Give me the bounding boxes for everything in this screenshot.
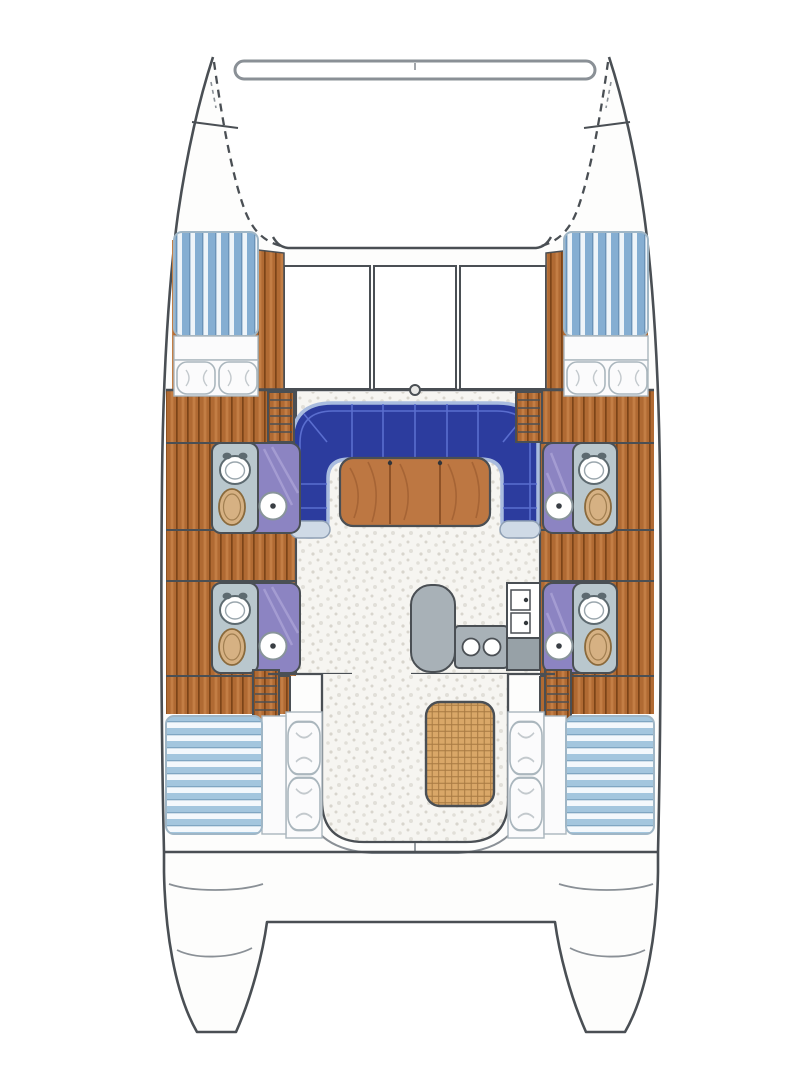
burner-knob [524, 598, 528, 602]
port-aft-berth [166, 716, 262, 834]
port-forward-berth-sheet [174, 336, 258, 360]
starboard-aft-cabin [508, 712, 654, 838]
mast-step [410, 385, 420, 395]
starboard-forward-cabin [564, 232, 648, 396]
salon-table [340, 458, 490, 526]
port-aft-steps [253, 670, 279, 720]
starboard-forward-steps [516, 392, 542, 442]
table-leaf-pin [438, 461, 442, 465]
starboard-aft-berth [566, 716, 654, 834]
pillow [219, 362, 257, 394]
starboard-aft-steps [545, 670, 571, 720]
catamaran-floor-plan [0, 0, 810, 1080]
cockpit-table [426, 702, 494, 806]
galley-sink [484, 639, 501, 656]
foredeck-hatch-starboard [460, 266, 546, 389]
table-leaf-pin [388, 461, 392, 465]
port-forward-steps [268, 392, 294, 442]
galley-counter-rounded [411, 585, 455, 672]
settee-arm-cap-starboard [500, 521, 540, 538]
pillow [288, 722, 320, 774]
pillow [510, 778, 542, 830]
pillow [177, 362, 215, 394]
port-forward-head [212, 443, 300, 533]
port-aft-head [212, 583, 300, 673]
port-aft-berth-sheet [262, 716, 286, 834]
pillow [510, 722, 542, 774]
port-forward-berth [174, 232, 258, 336]
galley-lower-counter [507, 638, 540, 670]
pillow [288, 778, 320, 830]
starboard-aft-berth-sheet [544, 716, 566, 834]
foredeck-hatch-port [284, 266, 370, 389]
starboard-aft-head [543, 583, 617, 673]
starboard-forward-head [543, 443, 617, 533]
starboard-forward-berth [564, 232, 648, 336]
deck-plan-svg [0, 0, 810, 1080]
port-aft-cabin [166, 712, 322, 838]
pillow [609, 362, 647, 394]
table-top [340, 458, 490, 526]
burner-knob [524, 621, 528, 625]
port-forward-cabin [174, 232, 258, 396]
starboard-forward-berth-sheet [564, 336, 648, 360]
foredeck-hatch-center [374, 266, 456, 389]
foredeck-edge [273, 237, 551, 248]
pillow [567, 362, 605, 394]
galley-sink [463, 639, 480, 656]
port-foredeck-wood-wedge [258, 250, 284, 389]
